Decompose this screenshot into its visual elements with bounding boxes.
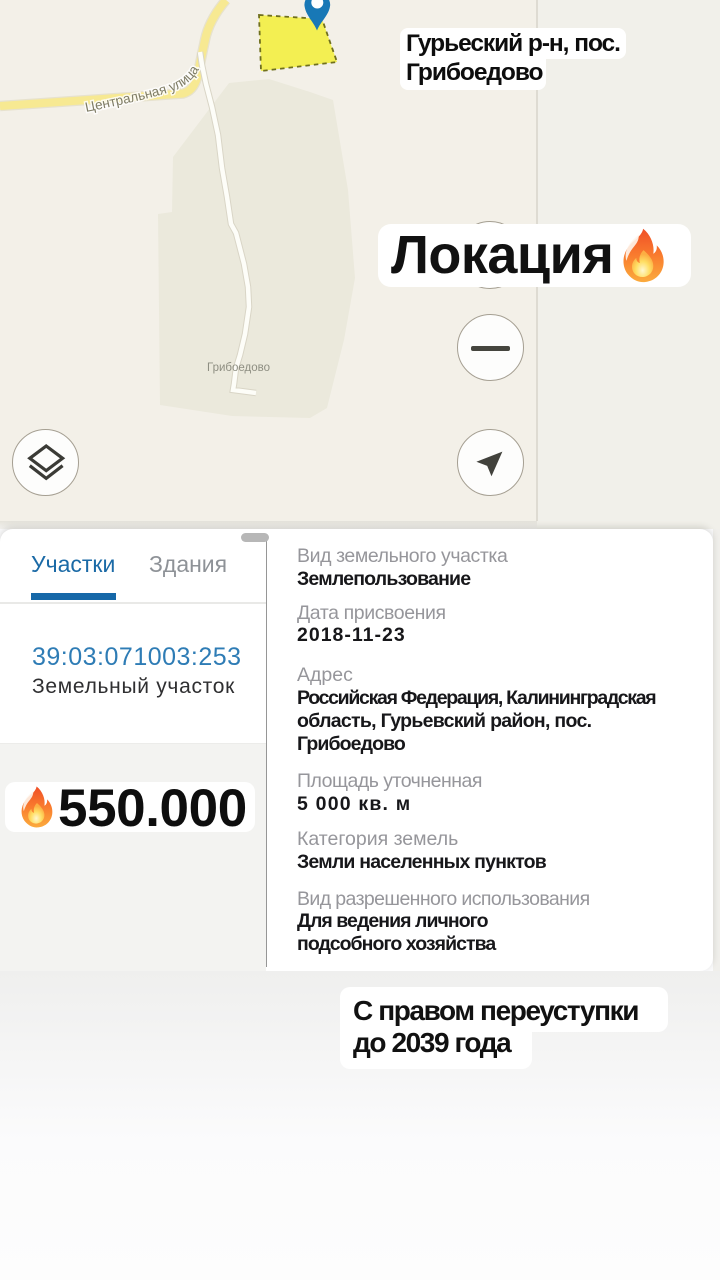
- svg-text:Центральная улица: Центральная улица: [84, 62, 202, 115]
- svg-text:Грибоедово: Грибоедово: [207, 362, 270, 374]
